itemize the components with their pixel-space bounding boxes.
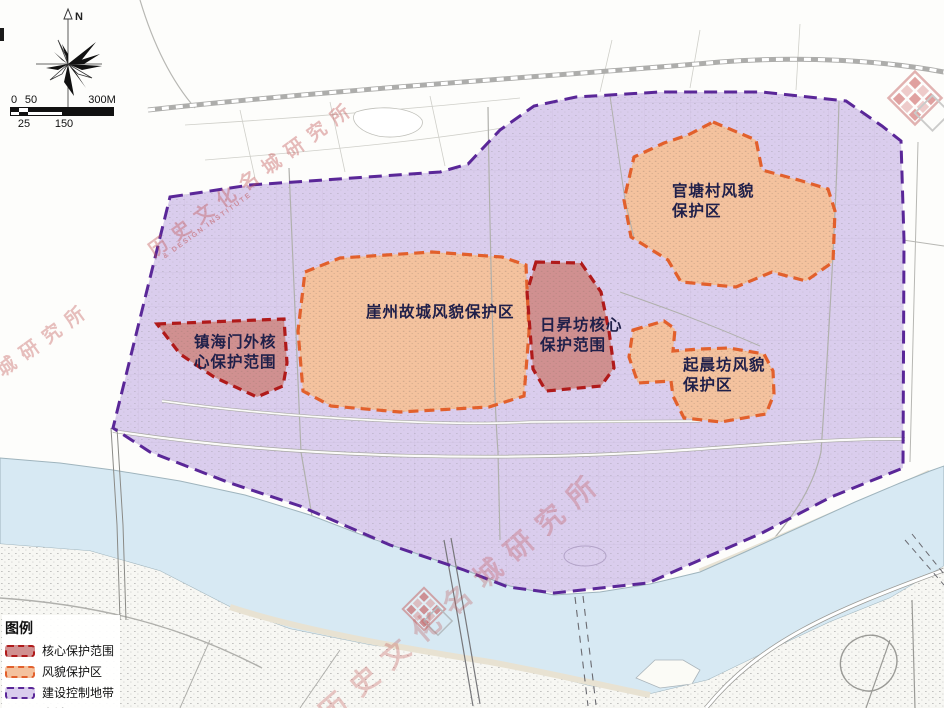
region-label-zhenhai: 镇海门外核 心保护范围: [194, 333, 277, 373]
legend-title: 图例: [5, 618, 114, 638]
region-label-qichen: 起晨坊风貌 保护区: [683, 356, 766, 396]
legend-swatch-style: [5, 666, 35, 678]
north-arrow-icon: [64, 9, 72, 19]
north-label: N: [75, 11, 83, 23]
scale-bar-segments: [10, 107, 114, 116]
legend-box: 图例 核心保护范围 风貌保护区 建设控制地带 水域: [2, 615, 120, 708]
scale-label: 50: [25, 94, 37, 106]
legend-item-control: 建设控制地带: [5, 684, 114, 701]
legend-item-style: 风貌保护区: [5, 663, 114, 680]
scale-bar: 0 50 300M 25 150: [10, 94, 128, 131]
region-label-risheng: 日昇坊核心 保护范围: [540, 316, 623, 356]
scale-label: 150: [55, 118, 73, 130]
legend-item-label: 核心保护范围: [42, 642, 114, 659]
legend-swatch-control: [5, 687, 35, 699]
legend-item-label: 风貌保护区: [42, 663, 102, 680]
map-page: 历史文化名城研究所 & DESIGN INSTITUTE 历史文化名城研究所 &…: [0, 0, 944, 708]
region-label-yazhou: 崖州故城风貌保护区: [366, 303, 515, 323]
legend-item-label: 建设控制地带: [42, 684, 114, 701]
legend-swatch-core: [5, 645, 35, 657]
map-canvas: [0, 0, 944, 708]
region-label-guantang: 官塘村风貌 保护区: [672, 182, 755, 222]
scale-label: 0: [11, 94, 17, 106]
map-edge-tick: [0, 28, 4, 41]
legend-item-core: 核心保护范围: [5, 642, 114, 659]
scale-label: 300M: [88, 94, 116, 106]
scale-label: 25: [18, 118, 30, 130]
